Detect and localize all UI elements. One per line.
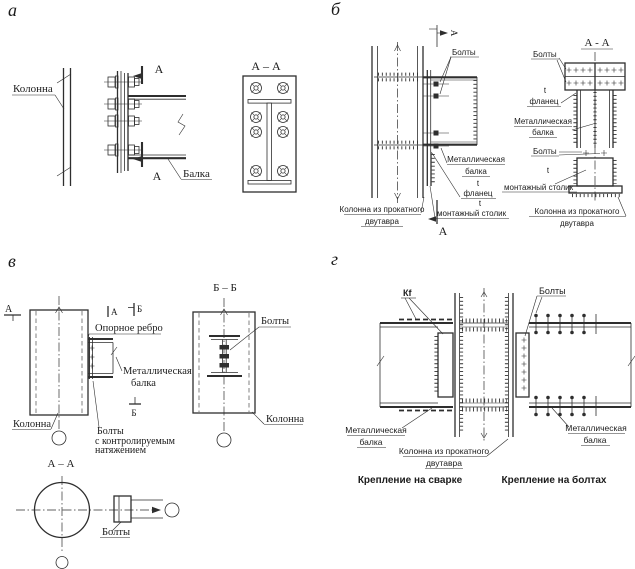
svg-text:Опорное ребро: Опорное ребро: [95, 323, 163, 334]
panel-a-bolted-end-connection: а: [8, 0, 296, 192]
svg-text:Болты: Болты: [539, 286, 566, 296]
section-mark-a-bottom: А: [133, 142, 162, 183]
svg-text:Колонна: Колонна: [13, 419, 51, 430]
section-a-a-title: А – А: [251, 59, 281, 73]
svg-text:А: А: [5, 304, 13, 315]
mounting-table-graphic: [427, 152, 433, 186]
label-flange-section: t фланец: [527, 86, 576, 107]
svg-text:t: t: [479, 199, 482, 208]
panel-b-flange-connection: б: [331, 0, 626, 238]
svg-text:Металлическая: Металлическая: [123, 366, 192, 377]
label-metal-beam: Металлическая балка: [441, 148, 505, 177]
svg-text:натяжением: натяжением: [95, 445, 147, 456]
svg-text:Болты: Болты: [102, 527, 130, 538]
panel-b-tag: б: [331, 0, 341, 19]
section-letter: А: [439, 224, 448, 238]
label-bolts-controlled: Болты с контролируемым натяжением: [93, 381, 176, 456]
section-mark-a-top: А: [133, 62, 164, 84]
label-column: Колонна: [12, 83, 64, 109]
section-letter-bottom: А: [153, 169, 162, 183]
panel-b-elevation-view: А А Болты Металлическая балка: [340, 25, 509, 238]
section-letter-rotated: А: [449, 30, 459, 37]
svg-text:балка: балка: [360, 437, 383, 447]
label-metal-beam-v: Металлическая балка: [116, 357, 192, 389]
svg-text:t: t: [477, 179, 480, 188]
label-beam: Балка: [168, 159, 212, 180]
svg-text:Колонна: Колонна: [13, 83, 53, 95]
svg-text:балка: балка: [532, 128, 554, 137]
label-bolts-aa: Болты: [100, 522, 130, 538]
svg-text:монтажный столик: монтажный столик: [437, 209, 507, 218]
connection-plates-graphic: [118, 71, 129, 173]
panel-v-tag: в: [8, 251, 16, 271]
section-mark-top: А: [429, 25, 459, 47]
label-bolts-top: Болты: [531, 50, 566, 82]
label-column-rolled-section: Колонна из прокатного двутавра: [529, 197, 626, 228]
svg-text:Б: Б: [131, 408, 136, 418]
svg-text:Колонна: Колонна: [266, 414, 304, 425]
bolt-heads-section: [251, 83, 289, 177]
section-mark-b-top: Б: [128, 303, 142, 316]
stub-bolt-crosses: [90, 346, 95, 369]
svg-text:t: t: [547, 166, 550, 175]
svg-text:t: t: [544, 86, 547, 95]
svg-text:балка: балка: [584, 435, 607, 445]
section-b-b-title: Б – Б: [213, 282, 237, 294]
beam-stub-graphic: [88, 337, 117, 379]
column-graphic-g: [455, 288, 513, 443]
label-metal-beam-section: Металлическая балка: [514, 117, 593, 138]
svg-text:фланец: фланец: [464, 189, 493, 198]
svg-text:Болты: Болты: [261, 316, 289, 327]
section-mark-bottom: А: [428, 200, 448, 238]
caption-welded: Крепление на сварке: [358, 475, 463, 486]
section-a-a-title: А - А: [584, 37, 609, 49]
svg-text:А: А: [111, 307, 118, 317]
label-bolts-lower: Болты: [531, 147, 600, 156]
panel-v-round-column-connection: в А А Б Опорное ребро: [4, 251, 304, 569]
section-mark-b-bottom: Б: [129, 397, 141, 418]
welded-beam-graphic: [377, 320, 453, 411]
svg-text:Металлическая: Металлическая: [514, 117, 572, 126]
svg-text:двутавра: двутавра: [365, 217, 399, 226]
section-a-a-view: А – А: [243, 59, 296, 192]
column-graphic: [57, 68, 71, 186]
label-bolts-bb: Болты: [230, 316, 291, 350]
label-support-rib: Опорное ребро: [88, 323, 163, 339]
svg-text:Металлическая: Металлическая: [345, 425, 407, 435]
svg-text:Болты: Болты: [452, 48, 476, 57]
beam-end-view-graphic: [207, 336, 242, 376]
bolts-side-view-graphic: [104, 76, 142, 156]
end-plate-bolt-crosses: [522, 338, 527, 391]
caption-bolted: Крепление на болтах: [502, 474, 607, 486]
steel-beam-column-connections-figure: а: [0, 0, 635, 569]
svg-text:балка: балка: [465, 167, 487, 176]
svg-text:Колонна из прокатного: Колонна из прокатного: [535, 207, 620, 216]
panel-b-section-a-a-view: А - А: [502, 37, 626, 228]
svg-text:монтажный столик: монтажный столик: [504, 183, 574, 192]
svg-text:Колонна из прокатного: Колонна из прокатного: [399, 446, 489, 456]
panel-v-section-b-b-view: Б – Б Болты: [193, 282, 304, 447]
panel-v-elevation-view: А А Б Опорное ребро: [4, 296, 192, 456]
svg-text:балка: балка: [131, 378, 156, 389]
label-column-rolled: Колонна из прокатного двутавра: [340, 197, 425, 227]
svg-text:Болты: Болты: [533, 147, 557, 156]
label-column-rolled-g: Колонна из прокатного двутавра: [399, 439, 508, 469]
svg-text:Балка: Балка: [183, 168, 210, 180]
label-metal-beam-right: Металлическая балка: [552, 408, 627, 446]
panel-g-tag: г: [331, 249, 338, 269]
label-column-bb: Колонна: [252, 412, 304, 425]
svg-text:Колонна из прокатного: Колонна из прокатного: [340, 205, 425, 214]
panel-g-welded-vs-bolted: г: [331, 249, 635, 486]
panel-v-section-a-a-view: А – А Болты: [16, 458, 179, 569]
beam-graphic: [128, 96, 186, 158]
section-letter-top: А: [155, 62, 164, 76]
drawing-canvas: а: [0, 0, 635, 569]
svg-text:Металлическая: Металлическая: [447, 155, 505, 164]
label-metal-beam-left: Металлическая балка: [345, 408, 432, 448]
svg-text:двутавра: двутавра: [426, 458, 462, 468]
label-bolts: Болты: [440, 48, 479, 94]
section-mark-a-left: А: [4, 304, 21, 321]
svg-text:Кf: Кf: [403, 288, 412, 298]
panel-a-tag: а: [8, 0, 17, 20]
svg-text:фланец: фланец: [530, 97, 559, 106]
svg-text:Б: Б: [137, 304, 142, 314]
section-mark-a-mid: А: [108, 306, 118, 317]
label-mount-table-section: t монтажный столик: [502, 166, 586, 192]
section-a-a-title: А – А: [48, 458, 75, 470]
svg-text:Болты: Болты: [533, 50, 557, 59]
svg-text:Металлическая: Металлическая: [565, 423, 627, 433]
bolted-beam-graphic: [516, 314, 635, 416]
svg-text:двутавра: двутавра: [560, 219, 594, 228]
